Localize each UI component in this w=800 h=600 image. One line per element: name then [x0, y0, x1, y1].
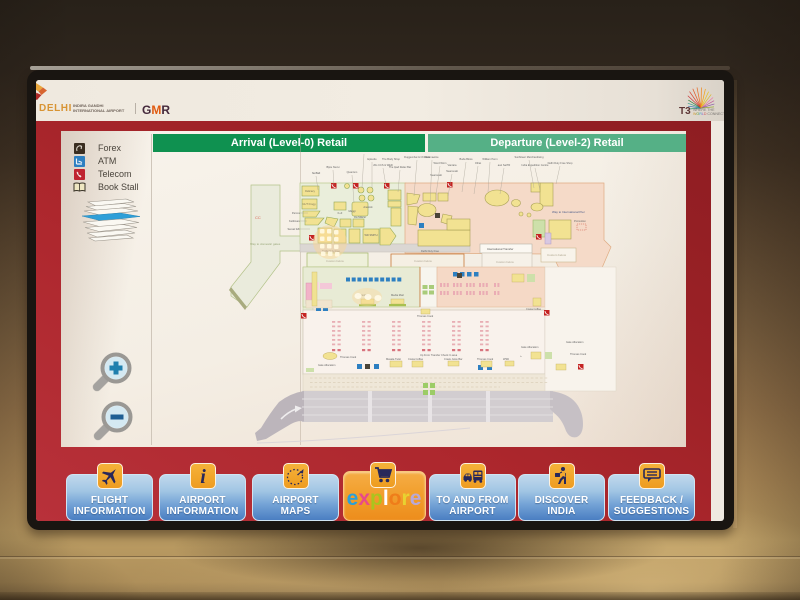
svg-text:GUT Frogg: GUT Frogg: [303, 202, 316, 206]
svg-text:WD SMITH: WD SMITH: [364, 233, 377, 237]
svg-text:Gate Allocation: Gate Allocation: [521, 345, 539, 349]
svg-text:Delhi Duty Free Shop: Delhi Duty Free Shop: [548, 161, 573, 165]
svg-text:Sereal 32b: Sereal 32b: [287, 227, 300, 231]
svg-text:i: i: [200, 466, 206, 488]
svg-text:William Penn: William Penn: [482, 157, 498, 161]
svg-text:Thomas Cook: Thomas Cook: [570, 352, 587, 356]
svg-text:Quantum: Quantum: [347, 170, 358, 174]
svg-text:Da Milano: Da Milano: [354, 215, 366, 219]
svg-text:India Expedition Centre: India Expedition Centre: [522, 163, 550, 167]
svg-text:Parcos: Parcos: [292, 211, 301, 215]
svg-text:Oihat: Oihat: [475, 161, 481, 165]
svg-text:Media Mart: Media Mart: [391, 293, 404, 297]
svg-text:Sunflower Merchandising: Sunflower Merchandising: [514, 155, 544, 159]
svg-text:Up From Transfer Check In area: Up From Transfer Check In area: [420, 353, 458, 357]
svg-text:Costa Coffee: Costa Coffee: [526, 307, 542, 311]
svg-text:Maggi: Maggi: [348, 209, 355, 213]
svg-text:Gurmawine: Gurmawine: [425, 155, 439, 159]
svg-text:Keldinare: Keldinare: [289, 219, 301, 223]
svg-text:Anelock: Anelock: [363, 205, 373, 209]
svg-text:Buda Bloss: Buda Bloss: [459, 157, 473, 161]
svg-text:Promotion: Promotion: [574, 219, 586, 223]
svg-text:Delhi Duty Free: Delhi Duty Free: [421, 249, 440, 253]
svg-text:Episode: Episode: [367, 157, 377, 161]
svg-text:Thomas Cook: Thomas Cook: [340, 355, 357, 359]
svg-text:Custom below: Custom below: [414, 259, 433, 263]
svg-text:F+F: F+F: [338, 211, 343, 215]
svg-text:Custom below: Custom below: [547, 253, 567, 257]
svg-text:The Ipad Relax Bar: The Ipad Relax Bar: [389, 165, 411, 169]
svg-text:International Transfer: International Transfer: [487, 247, 513, 251]
svg-text:Word Worn: Word Worn: [433, 161, 447, 165]
svg-text:Custom below: Custom below: [496, 260, 515, 264]
svg-text:Gate Allocation: Gate Allocation: [566, 340, 584, 344]
svg-text:Vantara: Vantara: [448, 163, 457, 167]
svg-text:Bijou Nuovi: Bijou Nuovi: [326, 165, 340, 169]
svg-text:Gate Allocation: Gate Allocation: [318, 363, 336, 367]
svg-text:CC: CC: [255, 215, 261, 220]
svg-text:NetBall: NetBall: [312, 171, 321, 175]
svg-text:Swarovski: Swarovski: [430, 173, 442, 177]
svg-text:Thomas Cook: Thomas Cook: [417, 314, 434, 318]
svg-text:Costa Coffee: Costa Coffee: [408, 357, 424, 361]
svg-text:Delicacy: Delicacy: [305, 189, 316, 193]
svg-text:Way to International Pier: Way to International Pier: [552, 210, 585, 214]
svg-text:Masala Twist: Masala Twist: [386, 357, 401, 361]
svg-text:Thomas Cook: Thomas Cook: [477, 357, 494, 361]
svg-text:Creek Juice Bar: Creek Juice Bar: [444, 357, 463, 361]
svg-text:Custom below: Custom below: [326, 259, 345, 263]
svg-text:Swarovski: Swarovski: [446, 169, 458, 173]
svg-text:The Body Shop: The Body Shop: [382, 157, 400, 161]
svg-text:Way to domestic gates: Way to domestic gates: [250, 242, 281, 246]
svg-text:aa1 SatTR: aa1 SatTR: [498, 163, 511, 167]
svg-text:WSD: WSD: [503, 357, 509, 361]
